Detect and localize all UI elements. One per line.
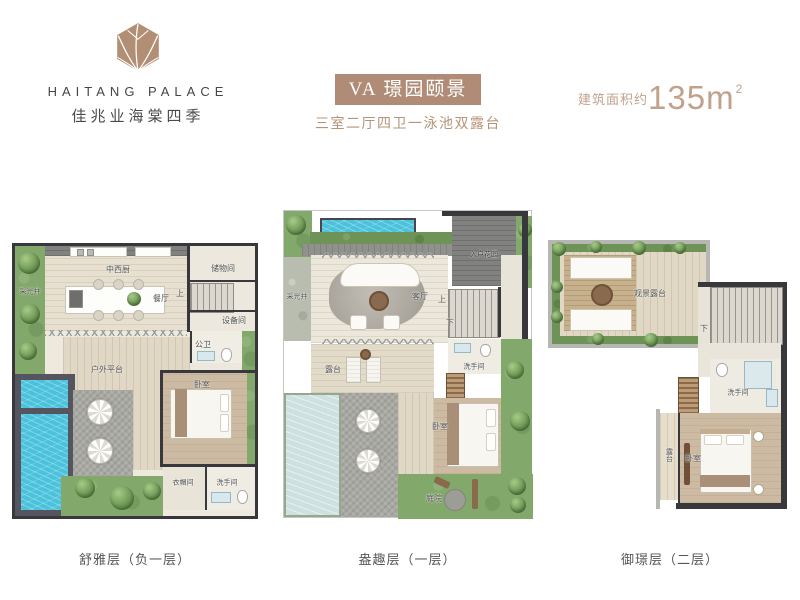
room-label-washroom: 洗手间	[217, 480, 238, 487]
outdoor-table	[591, 284, 613, 306]
room-label-washroom: 洗手间	[728, 390, 749, 397]
toilet	[221, 348, 232, 362]
tree	[551, 311, 563, 323]
room-label-equipment: 设备间	[222, 317, 246, 325]
tree	[674, 242, 686, 254]
exterior-wall	[676, 503, 787, 509]
dining-chair	[93, 310, 104, 321]
brand-block: HAITANG PALACE 佳兆业海棠四季	[38, 22, 238, 126]
table-centerpiece	[127, 292, 141, 306]
walkway	[398, 393, 434, 474]
side-table	[360, 349, 371, 360]
stair-label-down: 下	[700, 325, 708, 333]
bed-throw	[175, 389, 187, 437]
armchair	[383, 315, 400, 330]
stair-label-up: 上	[438, 296, 446, 304]
room-label-dining: 餐厅	[153, 295, 169, 303]
garden-table	[444, 489, 466, 511]
coffee-table	[369, 291, 389, 311]
side-garden	[247, 373, 255, 464]
tree	[551, 281, 563, 293]
room-label-view-terrace: 观景露台	[634, 290, 666, 298]
floor-plan-second: 观景露台 下 洗手间 露台 卧室	[548, 237, 792, 514]
wardrobe	[446, 373, 465, 400]
headboard	[700, 429, 750, 434]
room-label-kitchen: 中西厨	[106, 266, 130, 274]
sink	[197, 351, 215, 361]
stairs	[710, 287, 783, 345]
room-label-terrace: 露台	[666, 448, 673, 462]
interior-wall	[190, 331, 192, 363]
room-label-entry-garden: 入户花园	[470, 252, 498, 259]
caption-first: 盎趣层（一层）	[283, 549, 532, 568]
pool-skylight	[284, 393, 341, 517]
area-value: 135m	[648, 84, 735, 112]
tree	[644, 333, 658, 347]
dining-chair	[113, 310, 124, 321]
side-garden	[501, 339, 532, 474]
tree	[552, 242, 566, 256]
nightstand	[753, 431, 764, 442]
wardrobe	[678, 377, 699, 415]
room-label-lightwell: 采光井	[287, 294, 308, 301]
hedge	[552, 244, 560, 344]
island-stove	[69, 290, 83, 308]
tree	[286, 215, 306, 235]
pillow	[486, 433, 496, 451]
lounge-umbrella-icon	[356, 449, 380, 473]
room-label-bedroom: 卧室	[685, 455, 701, 463]
tree	[510, 497, 526, 513]
caption-second: 御璟层（二层）	[548, 549, 792, 568]
area-label: 建筑面积约	[578, 89, 648, 108]
brand-logo-icon	[112, 22, 164, 72]
side-garden	[242, 331, 255, 374]
pillow	[486, 409, 496, 427]
tree	[20, 304, 40, 324]
tree	[75, 478, 95, 498]
tree	[592, 333, 604, 345]
walkway	[133, 390, 163, 470]
room-label-bedroom: 卧室	[432, 423, 448, 431]
toilet	[237, 490, 248, 504]
room-label-terrace: 露台	[325, 366, 341, 374]
lounger	[346, 357, 361, 383]
bed-throw	[447, 403, 459, 465]
unit-title: VA 璟园颐景	[335, 74, 481, 105]
sink	[766, 389, 778, 407]
lounge-umbrella-icon	[87, 438, 113, 464]
tree	[110, 486, 134, 510]
folding-door	[322, 252, 434, 258]
dining-chair	[113, 279, 124, 290]
pillow	[726, 435, 744, 445]
stair-label-up: 上	[176, 290, 184, 298]
tree	[143, 482, 161, 500]
corridor-floor	[501, 255, 522, 339]
lounger	[366, 357, 381, 383]
floor-plan-sheet: HAITANG PALACE 佳兆业海棠四季 VA 璟园颐景 三室二厅四卫一泳池…	[0, 0, 800, 600]
folding-door	[45, 330, 187, 336]
lounge-umbrella-icon	[356, 409, 380, 433]
floor-plan-basement: 采光井 中西厨 餐厅 储物间 上 设备间 公卫 户外平台	[12, 243, 258, 519]
dining-chair	[133, 310, 144, 321]
unit-subtitle: 三室二厅四卫一泳池双露台	[295, 113, 521, 133]
brand-name-en: HAITANG PALACE	[38, 84, 238, 99]
tree	[510, 411, 530, 431]
tree	[19, 342, 37, 360]
bedroom-bench	[684, 443, 690, 485]
swimming-pool-water	[21, 380, 68, 408]
dining-chair	[93, 279, 104, 290]
interior-wall	[190, 280, 255, 282]
bed-throw	[700, 475, 750, 487]
closet-floor	[163, 467, 205, 510]
tree	[508, 477, 526, 495]
brand-name-cn: 佳兆业海棠四季	[38, 105, 238, 126]
area-exponent: 2	[736, 82, 743, 96]
stairs	[448, 289, 500, 338]
hedge	[552, 336, 706, 344]
room-label-courtyard: 庭院	[426, 495, 442, 503]
room-label-bedroom: 卧室	[194, 381, 210, 389]
outdoor-sofa	[570, 309, 632, 331]
sink	[211, 492, 231, 503]
interior-wall	[190, 310, 255, 312]
floor-plan-first: 入户花园 采光井 客厅 上 下 洗手间 卧室	[283, 210, 532, 518]
tree	[18, 252, 40, 274]
room-label-lightwell: 采光井	[20, 289, 41, 296]
cooktop-icon	[87, 249, 94, 256]
washroom-floor	[207, 467, 255, 510]
room-label-outdoor-deck: 户外平台	[91, 366, 123, 374]
hedge	[310, 232, 456, 244]
room-label-living: 客厅	[412, 293, 428, 301]
room-label-storage: 储物间	[211, 265, 235, 273]
pillow	[220, 394, 229, 412]
area-block: 建筑面积约 135m 2	[578, 84, 758, 112]
curved-sofa	[340, 263, 420, 287]
sink	[454, 343, 471, 353]
armchair	[350, 315, 367, 330]
shower	[744, 361, 772, 389]
toilet	[716, 363, 728, 377]
stairs	[190, 283, 234, 313]
room-label-closet: 衣帽间	[173, 480, 194, 487]
kitchen-sink-counter	[135, 247, 171, 257]
cooktop-icon	[77, 249, 84, 256]
stair-landing	[698, 287, 710, 343]
pillow	[220, 414, 229, 432]
caption-basement: 舒雅层（负一层）	[12, 549, 258, 568]
toilet	[480, 344, 491, 357]
garden-bench	[472, 479, 478, 509]
tree	[632, 241, 646, 255]
tree	[590, 241, 602, 253]
outdoor-sofa	[570, 257, 632, 279]
nightstand	[753, 484, 764, 495]
tree	[506, 361, 524, 379]
pillow	[704, 435, 722, 445]
room-label-washroom: 洗手间	[464, 364, 485, 371]
room-label-bath: 公卫	[195, 341, 211, 349]
dining-chair	[133, 279, 144, 290]
lounge-umbrella-icon	[87, 399, 113, 425]
stair-label-down: 下	[446, 319, 454, 327]
